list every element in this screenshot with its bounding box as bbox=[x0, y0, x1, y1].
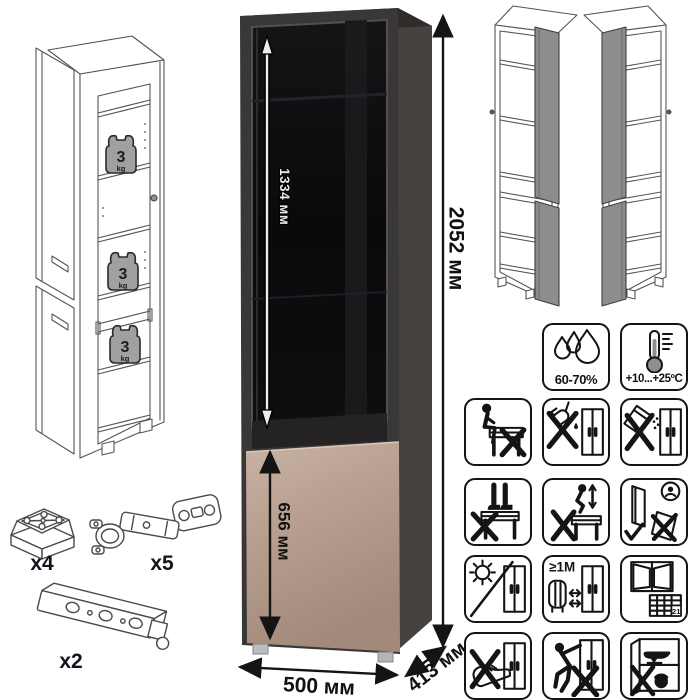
hinges-quantity: x5 bbox=[140, 553, 184, 574]
humidity-value: 60-70% bbox=[555, 373, 597, 386]
tile-heater-distance: ≥1M bbox=[542, 555, 610, 623]
tile-no-standing bbox=[464, 478, 532, 546]
no-sitting-icon bbox=[467, 401, 529, 463]
tile-no-liquids bbox=[542, 398, 610, 466]
no-heavy-items-icon bbox=[623, 635, 685, 697]
cabinet-foot bbox=[378, 652, 393, 662]
no-dragging-icon bbox=[545, 635, 607, 697]
tile-no-sitting bbox=[464, 398, 532, 466]
ventilate-room-icon: 21 bbox=[623, 558, 685, 620]
tile-no-heavy-items bbox=[620, 632, 688, 700]
weight-3kg-icon: 3 kg bbox=[108, 253, 138, 290]
no-spilling-powder-icon bbox=[623, 401, 685, 463]
heat-distance-value: ≥1M bbox=[549, 559, 575, 574]
cabinet-icon bbox=[504, 643, 525, 688]
temperature-value: +10...+25ºC bbox=[626, 374, 683, 386]
cup-hinge-icon bbox=[86, 480, 234, 562]
tile-temperature: +10...+25ºC bbox=[620, 323, 688, 391]
wardrobe-open-door-left bbox=[490, 6, 578, 306]
rails-quantity: x2 bbox=[49, 651, 93, 672]
lower-door-height-label: 656 мм bbox=[276, 492, 293, 572]
open-cabinet-wireframe: 3 kg 3 kg 3 kg bbox=[2, 28, 232, 493]
wf-knob bbox=[151, 195, 157, 201]
wf-door-bottom bbox=[36, 286, 74, 454]
no-pushing-with-shoe-icon bbox=[467, 635, 529, 697]
width-label: 500 мм bbox=[257, 673, 382, 700]
weight-3kg-icon: 3 kg bbox=[106, 136, 136, 173]
no-jumping-icon bbox=[545, 481, 607, 543]
no-direct-sunlight-icon bbox=[467, 558, 529, 620]
furniture-spec-sheet: 3 kg 3 kg 3 kg bbox=[0, 0, 689, 700]
svg-text:kg: kg bbox=[119, 281, 128, 290]
cabinet-icon bbox=[582, 409, 603, 454]
keep-1m-from-heater-icon: ≥1M bbox=[545, 558, 607, 620]
tile-no-sunlight bbox=[464, 555, 532, 623]
tile-no-shoe-push bbox=[464, 632, 532, 700]
cabinet-product-render bbox=[233, 0, 447, 668]
humidity-icon bbox=[547, 328, 605, 372]
overall-height-label: 2052 мм bbox=[446, 193, 467, 305]
glass-reflection bbox=[345, 20, 367, 425]
cabinet-side-panel bbox=[398, 8, 432, 650]
wardrobe-open-door-right bbox=[584, 6, 672, 306]
carry-door-correctly-icon bbox=[623, 481, 685, 543]
tile-humidity: 60-70% bbox=[542, 323, 610, 391]
cabinet-icon bbox=[660, 409, 681, 454]
svg-text:kg: kg bbox=[121, 354, 130, 363]
tile-no-powder bbox=[620, 398, 688, 466]
cabinet-foot bbox=[253, 644, 268, 654]
tile-ventilate-room: 21 bbox=[620, 555, 688, 623]
cabinet-pair-wireframe bbox=[478, 0, 683, 318]
cabinet-icon bbox=[582, 566, 603, 611]
lower-door bbox=[246, 442, 400, 652]
tile-no-dragging bbox=[542, 632, 610, 700]
svg-text:kg: kg bbox=[117, 164, 126, 173]
wf-door-top bbox=[36, 48, 74, 300]
cabinet-icon bbox=[504, 566, 525, 611]
tile-carry-door-correctly bbox=[620, 478, 688, 546]
calendar-day-value: 21 bbox=[672, 607, 681, 616]
no-standing-icon bbox=[467, 481, 529, 543]
no-pouring-liquids-icon bbox=[545, 401, 607, 463]
temperature-icon bbox=[625, 329, 683, 373]
glass-door-height-label: 1334 мм bbox=[277, 152, 291, 242]
feet-quantity: x4 bbox=[22, 553, 62, 574]
tile-no-jumping bbox=[542, 478, 610, 546]
weight-3kg-icon: 3 kg bbox=[110, 326, 140, 363]
mounting-rail-icon bbox=[22, 572, 182, 680]
